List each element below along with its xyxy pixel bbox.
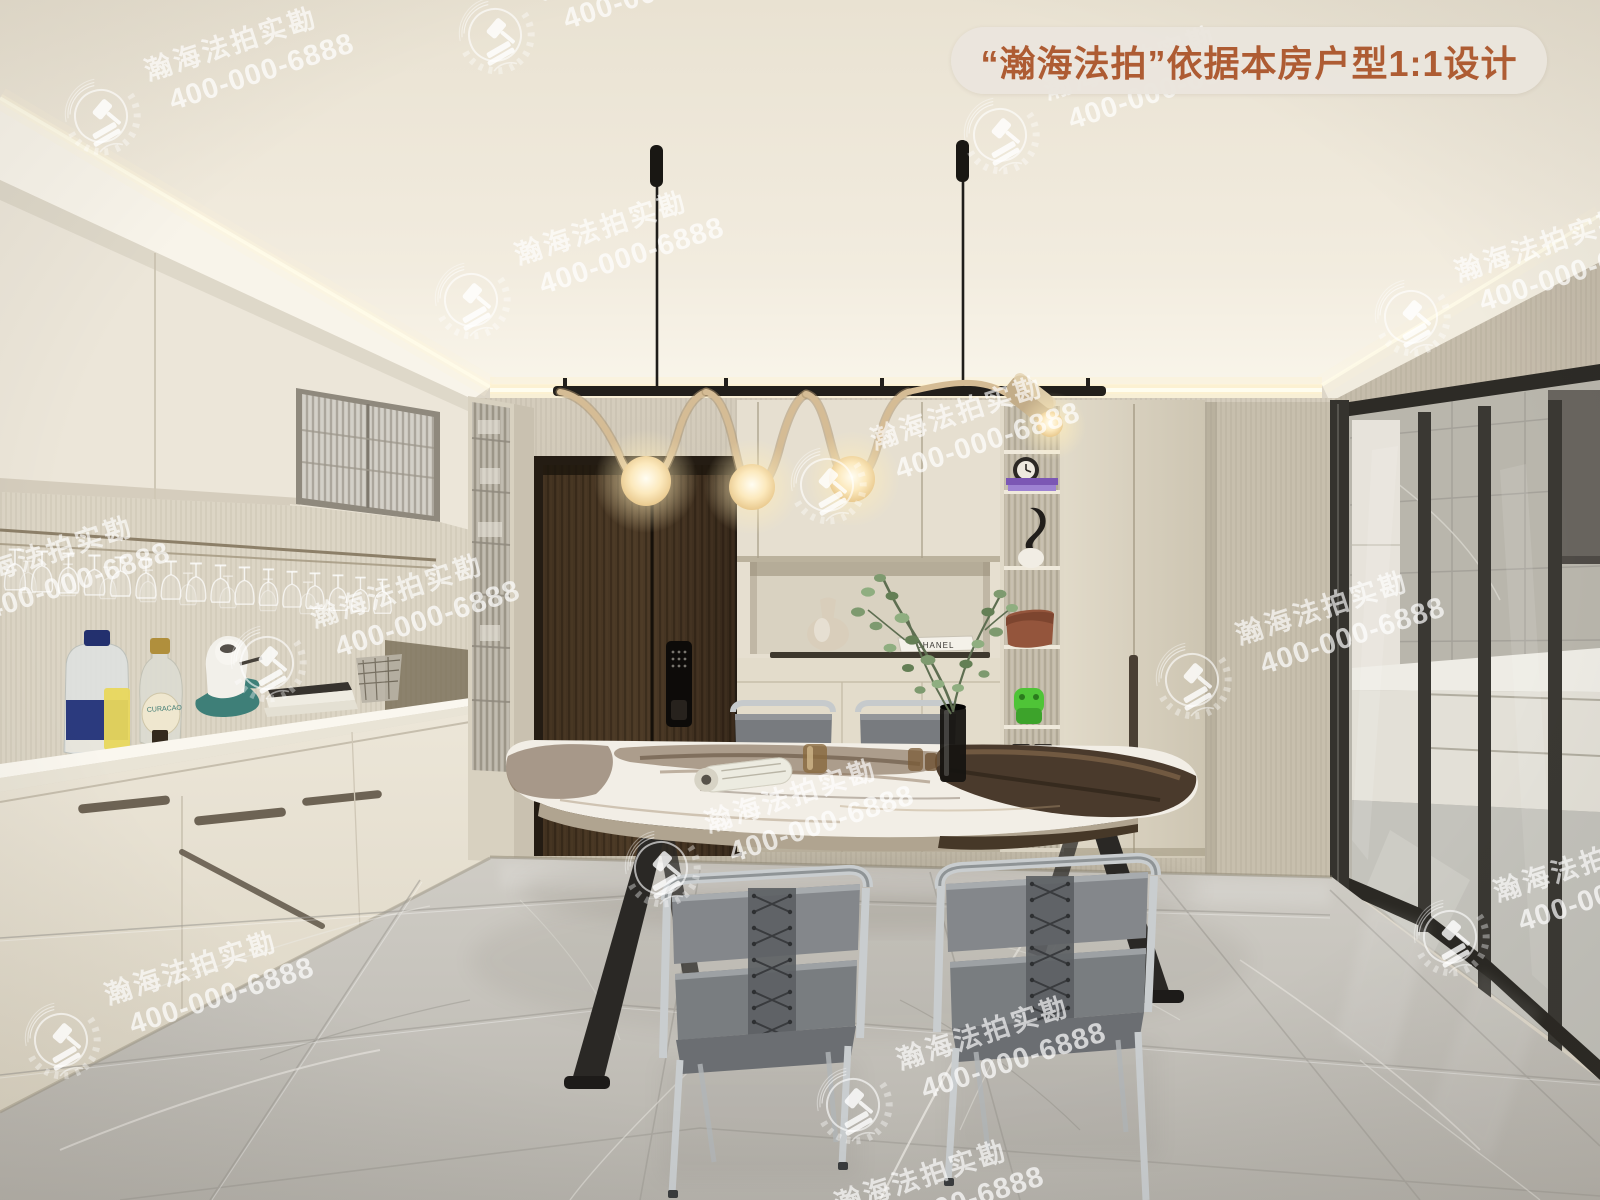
vignette	[0, 0, 1600, 1200]
promo-banner-text: “瀚海法拍”依据本房户型1:1设计	[980, 35, 1517, 87]
interior-render: CHANEL	[0, 0, 1600, 1200]
room-scene: CHANEL	[0, 0, 1600, 1200]
promo-banner: “瀚海法拍”依据本房户型1:1设计	[951, 27, 1547, 94]
